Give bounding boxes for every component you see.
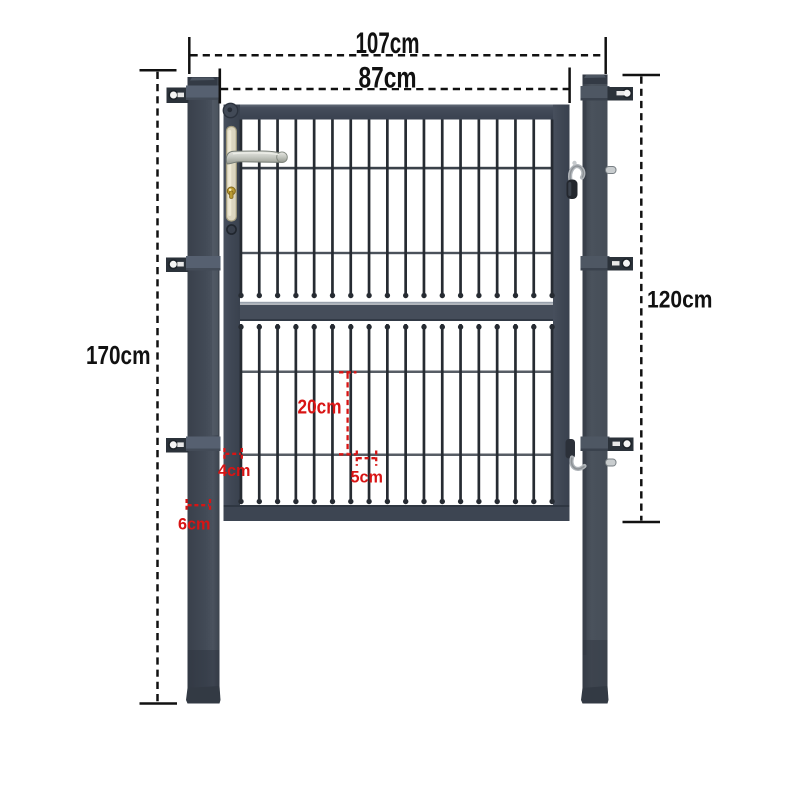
svg-text:107cm: 107cm	[356, 27, 420, 60]
svg-text:170cm: 170cm	[86, 340, 151, 370]
svg-text:20cm: 20cm	[298, 396, 342, 419]
svg-text:6cm: 6cm	[178, 516, 211, 534]
svg-text:4cm: 4cm	[218, 462, 251, 480]
svg-text:5cm: 5cm	[351, 469, 384, 487]
svg-text:87cm: 87cm	[359, 62, 417, 95]
svg-text:120cm: 120cm	[647, 287, 713, 314]
